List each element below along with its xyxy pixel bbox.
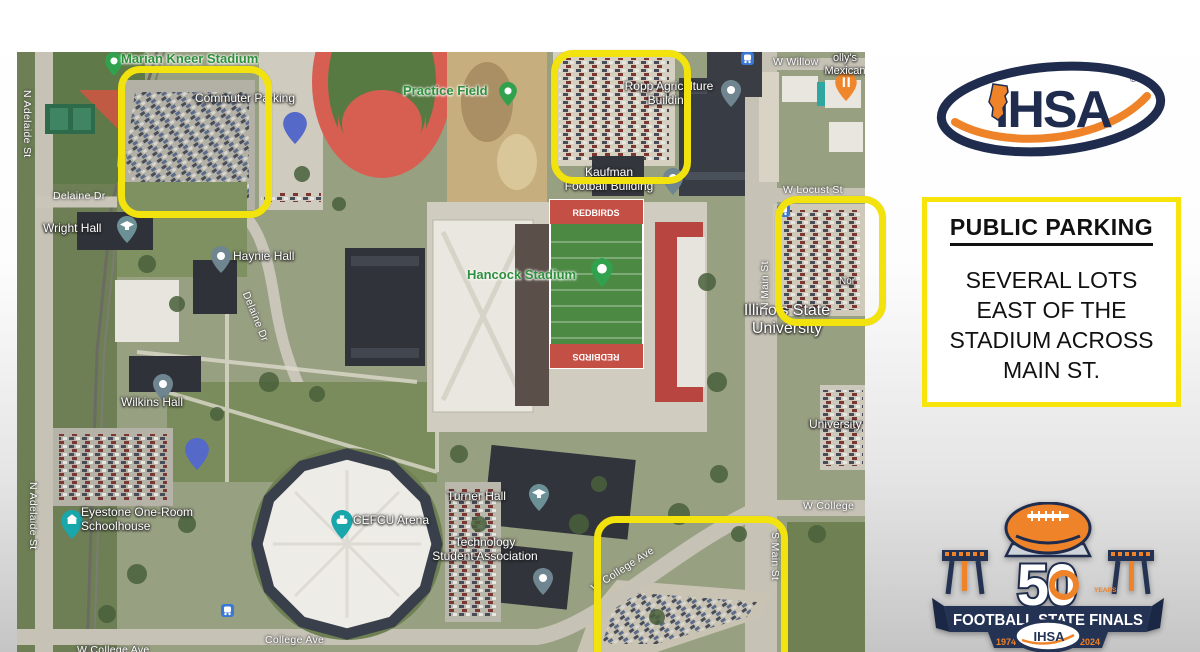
public-parking-panel: PUBLIC PARKING SEVERAL LOTS EAST OF THE … — [922, 197, 1181, 407]
arena-pin-cefcu — [331, 510, 353, 544]
parking-pin-commuter — [283, 112, 307, 149]
end-zone-text-south: REDBIRDS — [572, 352, 619, 362]
park-pin-practice-field — [499, 82, 517, 111]
registered-mark: ® — [1130, 74, 1137, 84]
mini-ihsa-text: IHSA — [1033, 629, 1065, 644]
rec-building — [115, 280, 179, 342]
street-w-locust: W Locust St — [783, 184, 843, 196]
label-turner-hall: Turner Hall — [447, 490, 506, 504]
transit-icon-north — [741, 52, 754, 65]
transit-icon-college — [221, 604, 234, 617]
year-start: 1974 — [996, 637, 1016, 647]
label-wilkins-hall: Wilkins Hall — [121, 396, 183, 410]
museum-pin-eyestone — [61, 510, 83, 544]
highlight-box-commuter-lot — [118, 66, 272, 218]
school-pin-wright — [117, 216, 137, 248]
football — [1006, 503, 1090, 553]
years-label: YEARS — [1094, 587, 1117, 594]
slide: REDBIRDS REDBIRDS — [0, 0, 1200, 652]
year-end: 2024 — [1080, 637, 1100, 647]
label-hancock-stadium: Hancock Stadium — [467, 268, 576, 283]
street-delaine-dr-1: Delaine Dr — [53, 190, 106, 202]
label-technology-student-association: Technology Student Association — [415, 536, 555, 564]
label-practice-field: Practice Field — [403, 84, 488, 99]
ihsa-logo-text: IHSA — [995, 81, 1113, 139]
highlight-box-ropp-lot — [551, 50, 691, 184]
street-w-willow: W Willow — [773, 56, 819, 68]
highlight-box-main-st-east-lot — [775, 196, 886, 326]
label-wright-hall: Wright Hall — [43, 222, 101, 236]
poi-pin-haynie — [211, 246, 231, 278]
parking-pin-wilkins-lot — [185, 438, 209, 475]
road-n-adelaide — [35, 52, 53, 652]
label-mexican-restaurant: olly's Mexican — [815, 52, 865, 77]
stadium-lights-left — [942, 550, 988, 594]
label-cefcu-arena: CEFCU Arena — [353, 514, 429, 528]
street-college-ave: College Ave — [265, 634, 324, 646]
end-zone-text-north: REDBIRDS — [572, 208, 619, 218]
panel-title: PUBLIC PARKING — [950, 214, 1153, 246]
street-n-adelaide-1: N Adelaide St — [21, 90, 33, 158]
park-pin-hancock-stadium — [591, 258, 613, 292]
ihsa-logo: IHSA ® — [933, 60, 1169, 158]
label-eyestone: Eyestone One-Room Schoolhouse — [81, 506, 193, 534]
label-marian-kneer-stadium: Marian Kneer Stadium — [121, 52, 258, 67]
street-w-college-ave-bottom: W College Ave — [77, 644, 150, 652]
label-haynie-hall: Haynie Hall — [233, 250, 294, 264]
label-university-partial: University — [809, 418, 865, 432]
highlight-box-college-ave-lot — [594, 516, 788, 652]
school-pin-turner — [529, 484, 549, 516]
poi-pin-technology — [533, 568, 553, 600]
street-n-adelaide-2: N Adelaide St — [27, 482, 39, 550]
football-state-finals-logo: 50 YEARS FOOTBALL STATE FINALS ★★★★★ 197… — [928, 502, 1168, 652]
west-stands — [515, 224, 549, 406]
panel-body: SEVERAL LOTS EAST OF THE STADIUM ACROSS … — [931, 266, 1172, 386]
street-w-college: W College — [803, 500, 854, 512]
street-n-main: N Main St — [759, 261, 771, 310]
